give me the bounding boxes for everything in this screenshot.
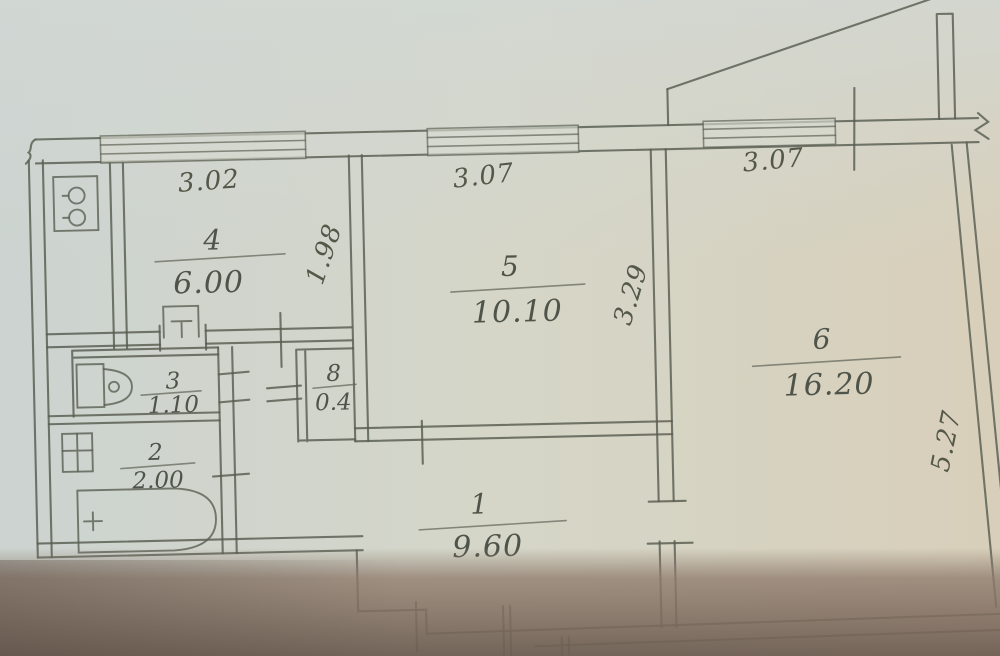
room-number: 1 <box>470 487 490 520</box>
room5-window <box>427 125 579 155</box>
room-number: 2 <box>147 440 163 466</box>
room-number: 4 <box>202 223 223 256</box>
room6-window-frame <box>703 118 836 147</box>
photo-shadow <box>0 548 1000 656</box>
floorplan-svg: 4 6.00 5 10.10 6 16.20 3 1.10 2 <box>0 0 1000 656</box>
dim-room6-window: 3.07 <box>741 143 805 179</box>
room5-window-frame <box>427 125 579 155</box>
room-area: 1.10 <box>148 392 200 419</box>
kitchen-window <box>100 131 306 163</box>
room-area: 10.10 <box>472 294 564 331</box>
room-number: 8 <box>326 361 341 387</box>
room-number: 5 <box>501 250 521 283</box>
room-area: 16.20 <box>783 367 875 404</box>
balcony-connector <box>667 89 668 125</box>
floorplan-photo: 4 6.00 5 10.10 6 16.20 3 1.10 2 <box>0 0 1000 656</box>
dim-kitchen-window: 3.02 <box>177 164 241 199</box>
room6-window <box>703 118 836 147</box>
room5-door-jamb <box>422 421 423 464</box>
shadow-left-corner <box>0 560 1000 656</box>
kitchen-window-frame <box>100 131 306 163</box>
room-number: 3 <box>165 368 180 394</box>
room-area: 0.4 <box>315 389 352 416</box>
room-area: 2.00 <box>131 467 184 494</box>
room-area: 6.00 <box>173 265 245 302</box>
room-number: 6 <box>812 322 832 355</box>
